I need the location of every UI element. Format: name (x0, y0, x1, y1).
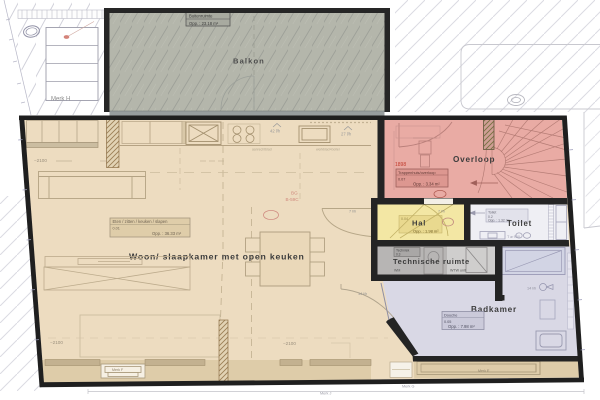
svg-text:werkblad+boiler: werkblad+boiler (316, 148, 341, 152)
svg-text:Merk G: Merk G (402, 385, 414, 389)
svg-text:WTW unit: WTW unit (450, 269, 466, 273)
svg-text:Buitenruimte: Buitenruimte (189, 14, 213, 19)
svg-text:Merk F: Merk F (112, 368, 124, 372)
svg-text:Opp. : 36.33 m²: Opp. : 36.33 m² (152, 231, 182, 236)
svg-text:7 l/h: 7 l/h (349, 210, 356, 214)
svg-text:Toilet: Toilet (488, 211, 496, 215)
svg-text:14 l/h: 14 l/h (358, 292, 367, 296)
svg-text:Trappenhuis/overloop: Trappenhuis/overloop (398, 170, 436, 175)
svg-text:Overloop: Overloop (453, 155, 495, 164)
svg-text:WM: WM (394, 269, 400, 273)
svg-text:−2100: −2100 (50, 340, 63, 345)
svg-text:Hal: Hal (412, 219, 426, 228)
svg-text:14 l/h: 14 l/h (527, 287, 536, 291)
svg-text:−2100: −2100 (34, 158, 47, 163)
svg-text:B-59C: B-59C (286, 197, 300, 202)
svg-text:1898: 1898 (395, 162, 406, 168)
svg-text:Douche: Douche (444, 313, 457, 318)
svg-text:Opp. : 1.98 m²: Opp. : 1.98 m² (413, 229, 439, 234)
svg-text:Eten / zitten / keuken / slape: Eten / zitten / keuken / slapen (113, 219, 169, 224)
svg-text:0.01: 0.01 (113, 227, 120, 231)
svg-text:Merk H: Merk H (51, 97, 70, 103)
svg-text:Balkon: Balkon (233, 57, 265, 66)
svg-text:Toilet: Toilet (507, 219, 532, 228)
svg-text:Merk J: Merk J (320, 392, 331, 396)
svg-text:27 l/h: 27 l/h (341, 132, 352, 137)
svg-text:T ⌀ 900: T ⌀ 900 (507, 235, 520, 239)
svg-text:Opp. : 7.98 m²: Opp. : 7.98 m² (448, 324, 475, 329)
svg-text:aanrechtblad: aanrechtblad (252, 148, 272, 152)
svg-text:7 l/h: 7 l/h (438, 210, 445, 214)
svg-text:Merk E: Merk E (478, 369, 490, 373)
svg-text:−2100: −2100 (283, 341, 296, 346)
svg-text:Technische ruimte: Technische ruimte (393, 257, 470, 266)
svg-text:0.07: 0.07 (398, 178, 405, 182)
svg-text:42 l/h: 42 l/h (270, 129, 281, 134)
svg-text:0.3: 0.3 (396, 253, 401, 257)
svg-text:Opp. : 23.18 m²: Opp. : 23.18 m² (189, 21, 219, 26)
svg-text:Opp. : 3.34 m²: Opp. : 3.34 m² (413, 182, 440, 187)
svg-text:0.04: 0.04 (401, 217, 408, 221)
svg-text:BG: BG (291, 191, 298, 196)
